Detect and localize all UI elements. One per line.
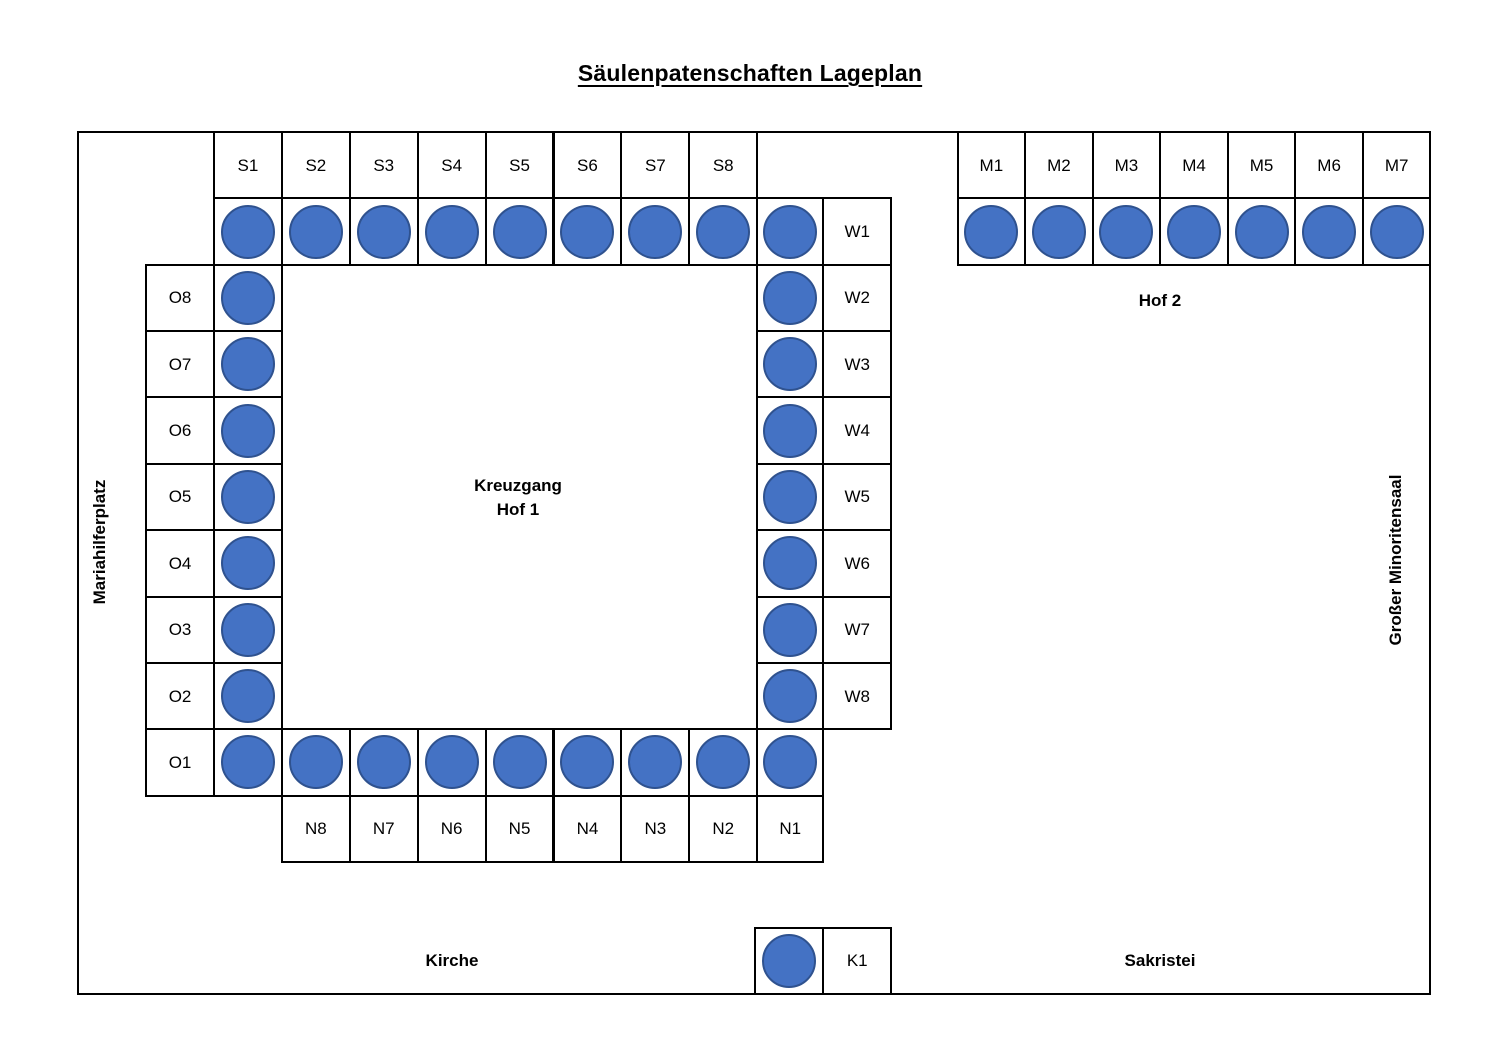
- cell-n8-column: [281, 728, 351, 796]
- minoritensaal-label: Großer Minoritensaal: [1384, 475, 1408, 646]
- cell-s1-column: [213, 197, 283, 265]
- column-marker-s1: [221, 205, 275, 259]
- cell-s6-column: [553, 197, 623, 265]
- cell-s6-label: S6: [553, 131, 623, 199]
- cell-s3-column: [349, 197, 419, 265]
- cell-n3-label: N3: [620, 795, 690, 863]
- cell-s8-column: [688, 197, 758, 265]
- cell-o6-column: [213, 396, 283, 464]
- cell-n6-column: [417, 728, 487, 796]
- lageplan-canvas: Säulenpatenschaften Lageplan Kreuzgang H…: [0, 0, 1500, 1052]
- cell-w6-label: W6: [822, 529, 892, 597]
- column-marker-s4: [425, 205, 479, 259]
- column-marker-o4: [221, 536, 275, 590]
- cell-m6-label: M6: [1294, 131, 1364, 199]
- cell-o6-label: O6: [145, 396, 215, 464]
- cell-o7-column: [213, 330, 283, 398]
- hof2-label: Hof 2: [1139, 289, 1182, 313]
- cell-o1-label: O1: [145, 728, 215, 796]
- cell-n7-column: [349, 728, 419, 796]
- column-marker-m5: [1235, 205, 1289, 259]
- column-marker-o7: [221, 337, 275, 391]
- cell-o4-column: [213, 529, 283, 597]
- cell-s2-column: [281, 197, 351, 265]
- column-marker-o1: [221, 735, 275, 789]
- cell-w1-column: [756, 197, 824, 265]
- cell-s5-column: [485, 197, 555, 265]
- cell-n2-label: N2: [688, 795, 758, 863]
- cell-m1-label: M1: [957, 131, 1027, 199]
- cell-s5-label: S5: [485, 131, 555, 199]
- column-marker-s3: [357, 205, 411, 259]
- column-marker-n4: [560, 735, 614, 789]
- column-marker-n7: [357, 735, 411, 789]
- courtyard-hof1-line2: Hof 1: [474, 498, 562, 522]
- cell-n6-label: N6: [417, 795, 487, 863]
- cell-w6-column: [756, 529, 824, 597]
- column-marker-m2: [1032, 205, 1086, 259]
- cell-m7-column: [1362, 197, 1432, 265]
- cell-n4-column: [553, 728, 623, 796]
- column-marker-s5: [493, 205, 547, 259]
- cell-o4-label: O4: [145, 529, 215, 597]
- cell-o1-column: [213, 728, 283, 796]
- cell-o2-column: [213, 662, 283, 730]
- cell-m1-column: [957, 197, 1027, 265]
- column-marker-m3: [1099, 205, 1153, 259]
- cell-o8-column: [213, 264, 283, 332]
- column-marker-m1: [964, 205, 1018, 259]
- cell-w5-column: [756, 463, 824, 531]
- cell-w3-column: [756, 330, 824, 398]
- sakristei-label: Sakristei: [1125, 949, 1196, 973]
- cell-m4-label: M4: [1159, 131, 1229, 199]
- column-marker-w4: [763, 404, 817, 458]
- cell-o7-label: O7: [145, 330, 215, 398]
- courtyard-hof1-line1: Kreuzgang: [474, 474, 562, 498]
- cell-w2-column: [756, 264, 824, 332]
- column-marker-w5: [763, 470, 817, 524]
- cell-m2-label: M2: [1024, 131, 1094, 199]
- cell-w4-label: W4: [822, 396, 892, 464]
- cell-s7-column: [620, 197, 690, 265]
- column-marker-w2: [763, 271, 817, 325]
- cell-s1-label: S1: [213, 131, 283, 199]
- cell-n5-label: N5: [485, 795, 555, 863]
- column-marker-n2: [696, 735, 750, 789]
- column-marker-s7: [628, 205, 682, 259]
- cell-n3-column: [620, 728, 690, 796]
- column-marker-w6: [763, 536, 817, 590]
- cell-w8-label: W8: [822, 662, 892, 730]
- cell-k1-label: K1: [822, 927, 892, 995]
- cell-m4-column: [1159, 197, 1229, 265]
- cell-s3-label: S3: [349, 131, 419, 199]
- cell-m3-label: M3: [1092, 131, 1162, 199]
- cell-w2-label: W2: [822, 264, 892, 332]
- cell-k1-column: [754, 927, 824, 995]
- cell-s7-label: S7: [620, 131, 690, 199]
- column-marker-n5: [493, 735, 547, 789]
- cell-o8-label: O8: [145, 264, 215, 332]
- column-marker-m7: [1370, 205, 1424, 259]
- cell-m5-label: M5: [1227, 131, 1297, 199]
- column-marker-o8: [221, 271, 275, 325]
- cell-n2-column: [688, 728, 758, 796]
- cell-w7-column: [756, 596, 824, 664]
- cell-w8-column: [756, 662, 824, 730]
- cell-m2-column: [1024, 197, 1094, 265]
- mariahilferplatz-label: Mariahilferplatz: [88, 480, 112, 605]
- cell-s2-label: S2: [281, 131, 351, 199]
- cell-o3-label: O3: [145, 596, 215, 664]
- courtyard-hof1-label: Kreuzgang Hof 1: [474, 474, 562, 522]
- column-marker-n1: [763, 735, 817, 789]
- cell-s8-label: S8: [688, 131, 758, 199]
- cell-n8-label: N8: [281, 795, 351, 863]
- cell-w5-label: W5: [822, 463, 892, 531]
- cell-s4-label: S4: [417, 131, 487, 199]
- column-marker-w7: [763, 603, 817, 657]
- cell-n1-column: [756, 728, 824, 796]
- column-marker-k1: [762, 934, 816, 988]
- column-marker-o5: [221, 470, 275, 524]
- kirche-label: Kirche: [426, 949, 479, 973]
- column-marker-w8: [763, 669, 817, 723]
- cell-n5-column: [485, 728, 555, 796]
- cell-o2-label: O2: [145, 662, 215, 730]
- cell-m5-column: [1227, 197, 1297, 265]
- cell-w3-label: W3: [822, 330, 892, 398]
- column-marker-o3: [221, 603, 275, 657]
- cell-m7-label: M7: [1362, 131, 1432, 199]
- cell-o3-column: [213, 596, 283, 664]
- cell-o5-label: O5: [145, 463, 215, 531]
- column-marker-o2: [221, 669, 275, 723]
- column-marker-n3: [628, 735, 682, 789]
- column-marker-w3: [763, 337, 817, 391]
- cell-n7-label: N7: [349, 795, 419, 863]
- column-marker-s6: [560, 205, 614, 259]
- column-marker-m6: [1302, 205, 1356, 259]
- column-marker-s8: [696, 205, 750, 259]
- column-marker-n6: [425, 735, 479, 789]
- cell-n4-label: N4: [553, 795, 623, 863]
- page-title: Säulenpatenschaften Lageplan: [0, 60, 1500, 87]
- cell-w4-column: [756, 396, 824, 464]
- cell-w7-label: W7: [822, 596, 892, 664]
- column-marker-n8: [289, 735, 343, 789]
- cell-m6-column: [1294, 197, 1364, 265]
- cell-w1-label: W1: [822, 197, 892, 265]
- column-marker-s2: [289, 205, 343, 259]
- column-marker-o6: [221, 404, 275, 458]
- cell-s4-column: [417, 197, 487, 265]
- cell-n1-label: N1: [756, 795, 824, 863]
- column-marker-w1: [763, 205, 817, 259]
- column-marker-m4: [1167, 205, 1221, 259]
- cell-o5-column: [213, 463, 283, 531]
- cell-m3-column: [1092, 197, 1162, 265]
